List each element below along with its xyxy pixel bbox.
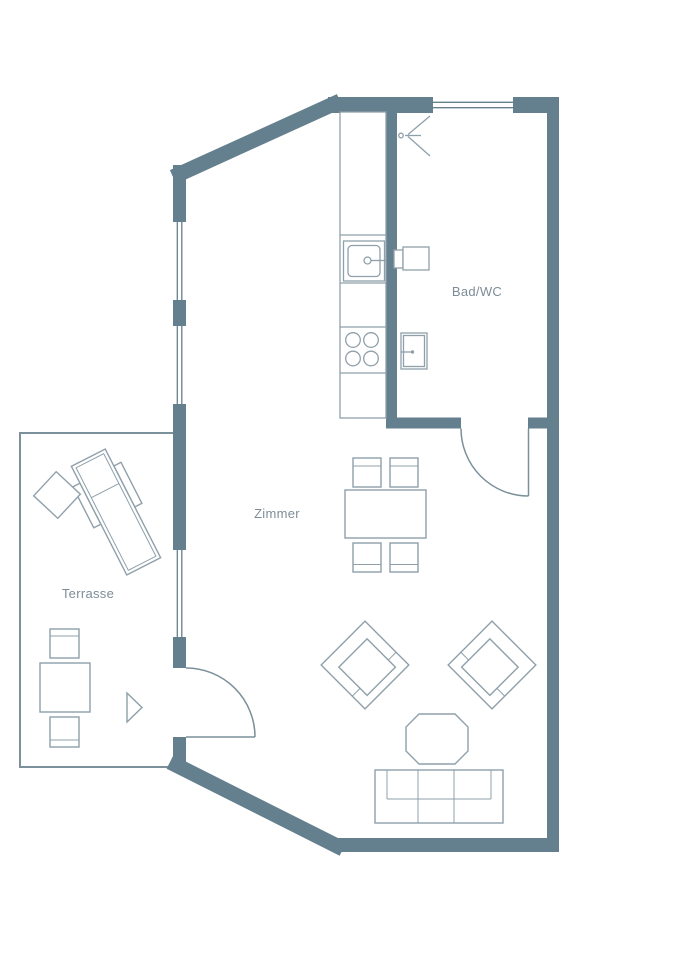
- floor-plan-canvas: Terrasse: [0, 0, 679, 960]
- window-top: [433, 97, 513, 113]
- window-top-gap: [433, 97, 513, 113]
- bathroom: Bad/WC: [394, 116, 502, 369]
- door-direction-triangle-icon: [127, 693, 142, 722]
- armchair-left: [321, 621, 409, 709]
- kitchen-faucet: [364, 257, 371, 264]
- shower-head-icon: [399, 116, 430, 156]
- armchair-left-frame: [321, 621, 409, 709]
- shower-spray-up: [408, 116, 430, 135]
- wall-top-left-diagonal: [173, 101, 340, 177]
- window-left-3: [173, 550, 186, 637]
- toilet-cistern: [394, 250, 403, 268]
- window-left-2-gap: [173, 326, 186, 404]
- entrance-door-opening: [171, 668, 187, 737]
- floor-plan-svg: Terrasse: [0, 0, 679, 960]
- terrace-area: Terrasse: [20, 433, 180, 767]
- window-left-3-gap: [173, 550, 186, 637]
- bathroom-label: Bad/WC: [452, 284, 502, 299]
- terrace-chair-bottom: [50, 717, 79, 747]
- entrance-door: [171, 668, 255, 737]
- dining-chair-4: [390, 543, 418, 572]
- terrace-table: [40, 663, 90, 712]
- dining-table: [345, 490, 426, 538]
- terrace-label: Terrasse: [62, 586, 114, 601]
- window-left-1-gap: [173, 222, 186, 300]
- terrace-side-table: [34, 472, 81, 519]
- dining-chair-3: [353, 543, 381, 572]
- sofa-frame: [375, 770, 503, 823]
- toilet-bowl: [403, 247, 429, 270]
- wall-bottom-left-diagonal: [170, 762, 343, 849]
- shower-spray-down: [408, 137, 430, 157]
- bathroom-faucet: [411, 350, 414, 353]
- dining-chair-1: [353, 458, 381, 487]
- window-left-1: [173, 222, 186, 300]
- sofa: [375, 770, 503, 823]
- bathroom-door: [461, 429, 529, 497]
- armchair-right-frame: [448, 621, 536, 709]
- entrance-door-arc: [186, 668, 255, 737]
- dining-chair-2: [390, 458, 418, 487]
- shower-dot: [399, 133, 404, 138]
- zimmer: Zimmer: [254, 458, 536, 823]
- side-table-top: [34, 472, 81, 519]
- window-left-2: [173, 326, 186, 404]
- sun-lounger: [64, 445, 168, 578]
- toilet: [394, 247, 429, 270]
- bathroom-door-arc: [461, 429, 529, 497]
- bathroom-sink-outer: [401, 333, 427, 369]
- armchair-right: [448, 621, 536, 709]
- bathroom-sink: [401, 333, 427, 369]
- kitchen: [340, 112, 386, 418]
- coffee-table: [406, 714, 468, 764]
- zimmer-label: Zimmer: [254, 506, 300, 521]
- terrace-chair-top: [50, 629, 79, 658]
